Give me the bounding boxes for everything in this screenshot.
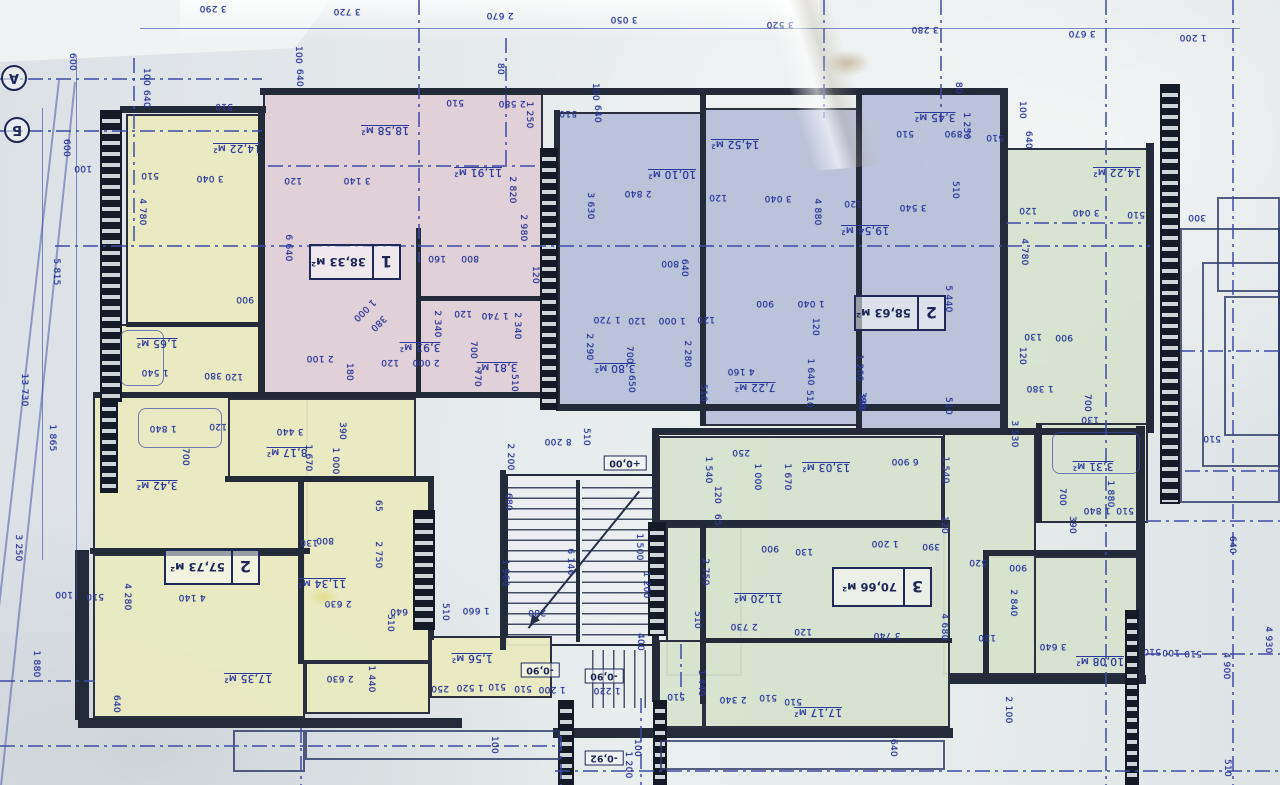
dimension-label: 510: [446, 97, 464, 107]
dimension-label: 100: [74, 163, 92, 173]
dimension-label: 120: [794, 626, 812, 636]
apartment-area: 58,63 м²: [850, 297, 917, 329]
dimension-label: 65: [712, 514, 722, 526]
room-area-label: 1,56 м²: [452, 652, 493, 664]
apartment-area: 57,73 м²: [164, 551, 231, 583]
balcony-outline: [1217, 197, 1280, 292]
apartment-label: 257,73 м²: [164, 549, 260, 585]
dimension-label: 280: [528, 607, 546, 617]
dimension-label: 390: [1067, 516, 1077, 534]
wall: [950, 675, 1146, 684]
dimension-label: 510: [759, 692, 777, 702]
dimension-label: 510: [784, 696, 802, 706]
wall: [658, 520, 950, 526]
dimension-label: 1 880: [31, 650, 41, 677]
dimension-label: 2 340: [512, 312, 522, 339]
dimension-label: 1 640: [805, 358, 815, 385]
wall: [553, 728, 953, 738]
dimension-label: 510: [1203, 433, 1221, 443]
dimension-label: 100: [293, 46, 303, 64]
dimension-label: 1 200: [1179, 32, 1206, 42]
room-area-label: 10,10 м²: [648, 168, 696, 180]
grid-axis-line: [1232, 0, 1234, 785]
dimension-label: 390: [856, 394, 866, 412]
dimension-label: 100: [1162, 647, 1180, 657]
dimension-label: 3 250: [13, 534, 23, 561]
dimension-label: 390: [337, 422, 347, 440]
dimension-label: 4 680: [939, 613, 949, 640]
grid-axis-line: [1146, 520, 1280, 522]
dimension-label: 1 440: [366, 665, 376, 692]
dimension-label: 2 980: [518, 214, 528, 241]
apartment-area: 38,33 м²: [305, 246, 372, 278]
dimension-label: 120: [209, 421, 227, 431]
wall: [93, 392, 545, 398]
dimension-label: 2 840: [624, 188, 651, 198]
dimension-label: 2 630: [326, 673, 353, 683]
dimension-label: 510: [986, 132, 1004, 142]
dimension-label: 640: [111, 695, 121, 713]
dimension-label: 100: [55, 589, 73, 599]
dimension-label: 1 720: [593, 314, 620, 324]
dimension-label: 6 140: [565, 548, 575, 575]
grid-axis-line: [1105, 0, 1107, 785]
paper-crease-fold: [747, 0, 892, 175]
dimension-label: 120: [1019, 205, 1037, 215]
dimension-label: 1 250: [961, 112, 971, 139]
dimension-label: 510: [1184, 648, 1202, 658]
room-yellow: [228, 398, 416, 480]
room-area-label: 19,54 м²: [841, 224, 889, 236]
grid-axis-line: [560, 736, 562, 785]
dimension-label: 600: [61, 139, 71, 157]
grid-axis-line: [1180, 350, 1280, 352]
dimension-label: 700: [624, 346, 634, 364]
wall: [298, 478, 304, 664]
dimension-label: 4 880: [812, 198, 822, 225]
dimension-label: 640: [888, 739, 898, 757]
dimension-label: 640: [1227, 536, 1237, 554]
wall: [1146, 143, 1154, 433]
dimension-label: 120: [709, 192, 727, 202]
elevation-mark: -0,90: [584, 669, 623, 684]
dimension-label: 2 290: [584, 333, 594, 360]
apartment-label: 138,33 м²: [309, 244, 401, 280]
dimension-label: 100: [632, 739, 642, 757]
grid-axis-line: [300, 728, 302, 785]
dimension-label: 1 500: [634, 533, 644, 560]
dimension-label: 160: [428, 253, 446, 263]
dimension-label: 4 780: [1019, 238, 1029, 265]
shaft-hatched-wall: [413, 510, 435, 630]
dimension-label: 1 250: [524, 101, 534, 128]
dimension-label: 120: [284, 175, 302, 185]
dimension-label: 510: [896, 128, 914, 138]
room-area-label: 3,93 м²: [400, 341, 441, 353]
dimension-label: 380: [204, 370, 222, 380]
room-area-label: 13,03 м²: [802, 461, 850, 473]
room-area-label: 17,17 м²: [794, 706, 842, 718]
dimension-label: 510: [488, 681, 506, 691]
grid-axis-line: [0, 745, 560, 747]
dimension-label: 510: [1143, 646, 1161, 656]
dimension-label: 1 000: [330, 447, 340, 474]
dimension-label: 510: [698, 384, 708, 402]
dimension-label: 510: [804, 390, 814, 408]
dimension-label: 1 200: [854, 354, 864, 381]
apartment-number: 1: [372, 246, 399, 278]
dimension-label: 640: [592, 105, 602, 123]
dimension-label: 2 100: [306, 353, 333, 363]
dimension-label: 1 960: [500, 559, 510, 586]
dimension-label: 510: [440, 603, 450, 621]
room-area-label: 3,31 м²: [1073, 460, 1114, 472]
dimension-label: 3 040: [764, 193, 791, 203]
dimension-label: 2 820: [507, 176, 517, 203]
dimension-label: 3 050: [610, 14, 637, 24]
dimension-label: 510: [1127, 209, 1145, 219]
grid-axis-line: [1006, 222, 1146, 224]
dimension-label: 120: [381, 357, 399, 367]
dimension-label: 2 340: [432, 310, 442, 337]
dimension-label: 2 670: [486, 10, 513, 20]
dimension-label: 1 200: [623, 751, 633, 778]
wall: [700, 93, 706, 426]
dimension-label: 640: [141, 90, 151, 108]
shaft-hatched-wall: [540, 148, 558, 410]
dimension-label: 510: [86, 591, 104, 601]
dimension-label: 3 540: [899, 202, 926, 212]
dimension-label: 80: [495, 63, 505, 75]
dimension-label: 510: [581, 428, 591, 446]
dimension-label: 120: [697, 314, 715, 324]
apartment-number: 3: [903, 569, 930, 605]
dimension-label: 2 100: [1003, 696, 1013, 723]
paper-stain: [826, 50, 870, 76]
elevation-mark: -0,92: [584, 751, 623, 766]
dimension-label: 510: [1222, 759, 1232, 777]
dimension-label: 3 040: [1072, 207, 1099, 217]
dimension-label: 120: [454, 308, 472, 318]
room-area-label: 11,20 м²: [734, 592, 782, 604]
dimension-label: 1 000: [658, 315, 685, 325]
grid-axis-line: [940, 0, 942, 122]
wall: [983, 550, 1143, 556]
room-area-label: 14,22 м²: [213, 142, 261, 154]
apartment-number: 2: [231, 551, 258, 583]
dimension-label: 4 780: [137, 198, 147, 225]
dimension-label: 3 290: [199, 3, 226, 13]
room-yellow: [302, 480, 430, 662]
elevation-mark: +0,00: [603, 456, 646, 471]
dimension-label: 250: [431, 683, 449, 693]
dimension-label: 510: [509, 374, 519, 392]
room-area-label: 3,42 м²: [137, 479, 178, 491]
dimension-label: 2 580: [498, 98, 525, 108]
dimension-label: 900: [236, 294, 254, 304]
apartment-label: 258,63 м²: [854, 295, 946, 331]
balcony-outline: [660, 740, 945, 770]
dimension-label: 1 865: [47, 424, 57, 451]
dimension-label: 390: [922, 541, 940, 551]
dimension-label: 1 660: [462, 605, 489, 615]
dimension-label: 900: [756, 298, 774, 308]
plan: 3 2903 7202 6703 0503 5203 2803 6701 200…: [0, 0, 1280, 785]
dimension-label: 120: [978, 632, 996, 642]
wall: [225, 476, 433, 482]
grid-axis-line: [1185, 470, 1280, 472]
dimension-label: 510: [692, 611, 702, 629]
dimension-label: 2 200: [505, 443, 515, 470]
dimension-label: 4 900: [1221, 652, 1231, 679]
shaft-hatched-wall: [100, 110, 122, 402]
dimension-label: 1 200: [538, 684, 565, 694]
dimension-label: 3 670: [1068, 28, 1095, 38]
dimension-label: 1 380: [1026, 383, 1053, 393]
shaft-hatched-wall: [100, 398, 118, 493]
dimension-label: 650: [626, 375, 636, 393]
dimension-chain-line: [76, 58, 77, 600]
grid-axis-line: [0, 680, 95, 682]
dimension-label: 130: [300, 537, 318, 547]
dimension-label: 120: [628, 315, 646, 325]
dimension-label: 3 720: [333, 6, 360, 16]
dimension-label: 680: [503, 493, 513, 511]
dimension-label: 13 730: [19, 373, 29, 406]
dimension-label: 100: [590, 83, 600, 101]
dimension-label: 100: [489, 736, 499, 754]
dimension-label: 1 520: [456, 682, 483, 692]
apartment-area: 70,66 м²: [836, 569, 903, 605]
dimension-label: 3 740: [873, 630, 900, 640]
dimension-label: 1 880: [1105, 480, 1115, 507]
dimension-label: 700: [1082, 394, 1092, 412]
dimension-label: 3 280: [911, 24, 938, 34]
grid-axis-line: [0, 78, 262, 80]
shaft-hatched-wall: [1160, 84, 1180, 504]
dimension-label: 1 000: [752, 463, 762, 490]
wall: [126, 322, 262, 327]
grid-axis-line: [133, 58, 135, 246]
dimension-label: 520: [969, 557, 987, 567]
dimension-chain-line: [42, 108, 43, 560]
dimension-label: 4 280: [122, 583, 132, 610]
dimension-label: 4 930: [1263, 626, 1273, 653]
dimension-label: 3 440: [276, 426, 303, 436]
dimension-label: 2 340: [719, 694, 746, 704]
dimension-label: 700: [1057, 488, 1067, 506]
dimension-label: 3 040: [196, 173, 223, 183]
dimension-label: 900: [1055, 332, 1073, 342]
dimension-label: 120: [225, 371, 243, 381]
dimension-label: 800: [316, 535, 334, 545]
dimension-label: 120: [530, 266, 540, 284]
dimension-label: 510: [943, 397, 953, 415]
dimension-label: 600: [67, 53, 77, 71]
dimension-label: 1 200: [871, 538, 898, 548]
room-area-label: 17,35 м²: [224, 672, 272, 684]
dimension-label: 120: [810, 318, 820, 336]
dimension-label: 1 540: [141, 367, 168, 377]
dimension-label: 900: [761, 543, 779, 553]
dimension-label: 4 140: [178, 592, 205, 602]
room-area-label: 14,52 м²: [711, 138, 759, 150]
dimension-label: 1 440: [696, 669, 706, 696]
dimension-label: 1 840: [149, 423, 176, 433]
dimension-label: 4 160: [727, 366, 754, 376]
wall: [260, 88, 1008, 95]
room-area-label: 11,91 м²: [454, 166, 502, 178]
dimension-label: 1 220: [593, 685, 620, 695]
dimension-label: 510: [514, 683, 532, 693]
dimension-label: 1 040: [797, 298, 824, 308]
dimension-label: 3 640: [1039, 641, 1066, 651]
dimension-label: 1 670: [303, 444, 313, 471]
dimension-label: 700: [180, 448, 190, 466]
dimension-label: 1 540: [940, 456, 950, 483]
dimension-label: 300: [1188, 212, 1206, 222]
apartment-number: 2: [917, 297, 944, 329]
dimension-label: 120: [1017, 347, 1027, 365]
floor-plan-photo: 3 2903 7202 6703 0503 5203 2803 6701 200…: [0, 0, 1280, 785]
dimension-label: 5 815: [51, 258, 61, 285]
axis-bubble: Б: [4, 117, 30, 143]
dimension-label: 800: [461, 253, 479, 263]
dimension-label: 100: [1017, 101, 1027, 119]
grid-axis-line: [55, 245, 1150, 247]
dimension-label: 510: [667, 691, 685, 701]
dimension-label: 640: [1023, 131, 1033, 149]
dimension-label: 100: [141, 68, 151, 86]
dimension-label: 3 630: [585, 192, 595, 219]
dimension-label: 120: [712, 486, 722, 504]
shaft-hatched-wall: [1125, 610, 1139, 785]
room-area-label: 3,81 м²: [477, 361, 518, 373]
dimension-label: 130: [1024, 331, 1042, 341]
dimension-label: 80: [953, 82, 963, 94]
grid-axis-line: [0, 130, 262, 132]
dimension-label: 1 200: [641, 571, 651, 598]
dimension-label: 400: [635, 633, 645, 651]
room-area-label: 7,22 м²: [735, 381, 776, 393]
balcony-outline: [233, 730, 305, 772]
dimension-label: 120: [844, 198, 862, 208]
wall: [556, 404, 1006, 411]
dimension-label: 1 540: [703, 456, 713, 483]
dimension-label: 2 280: [682, 340, 692, 367]
dimension-label: 180: [344, 363, 354, 381]
dimension-label: 6 900: [891, 456, 918, 466]
dimension-label: 510: [559, 108, 577, 118]
grid-axis-line: [418, 0, 420, 262]
dimension-label: 800: [661, 258, 679, 268]
dimension-label: 510: [141, 170, 159, 180]
dimension-label: 2 750: [700, 558, 710, 585]
dimension-label: 1 740: [481, 310, 508, 320]
room-area-label: 1,65 м²: [137, 337, 178, 349]
dimension-label: 120: [939, 516, 949, 534]
dimension-label: 510: [950, 181, 960, 199]
apartment-label: 370,66 м²: [832, 567, 932, 607]
dimension-label: 3 530: [1009, 420, 1019, 447]
dimension-label: 6 640: [283, 234, 293, 261]
dimension-label: 3 140: [343, 175, 370, 185]
dimension-label: 510: [385, 614, 395, 632]
wall: [983, 554, 989, 684]
dimension-label: 2 730: [730, 621, 757, 631]
room-green: [658, 436, 943, 526]
dimension-label: 130: [1081, 414, 1099, 424]
dimension-label: 640: [294, 69, 304, 87]
dimension-label: 2 750: [373, 541, 383, 568]
dimension-label: 640: [679, 259, 689, 277]
room-area-label: 8,17 м²: [267, 446, 308, 458]
wall: [576, 480, 580, 642]
wall: [78, 718, 462, 728]
dimension-label: 2 000: [412, 357, 439, 367]
dimension-label: 900: [1009, 562, 1027, 572]
room-area-label: 3,45 м²: [915, 111, 956, 123]
wall: [1036, 423, 1042, 523]
dimension-label: 250: [732, 447, 750, 457]
wall: [416, 296, 546, 301]
marker-smudge: [308, 588, 338, 606]
elevation-mark: -0,90: [520, 663, 559, 678]
grid-axis-line: [555, 770, 1280, 772]
dimension-label: 130: [795, 546, 813, 556]
dimension-label: 8 200: [544, 436, 571, 446]
room-area-label: 10,08 м²: [1076, 655, 1124, 667]
room-area-label: 14,22 м²: [1093, 166, 1141, 178]
wall: [704, 638, 952, 643]
dimension-label: 700: [468, 341, 478, 359]
dimension-label: 1 670: [782, 463, 792, 490]
dimension-label: 510: [1116, 505, 1134, 515]
room-area-label: 18,58 м²: [361, 124, 409, 136]
axis-bubble: А: [1, 65, 27, 91]
dimension-label: 510: [215, 101, 233, 111]
dimension-label: 2 840: [1008, 589, 1018, 616]
dimension-label: 65: [373, 500, 383, 512]
